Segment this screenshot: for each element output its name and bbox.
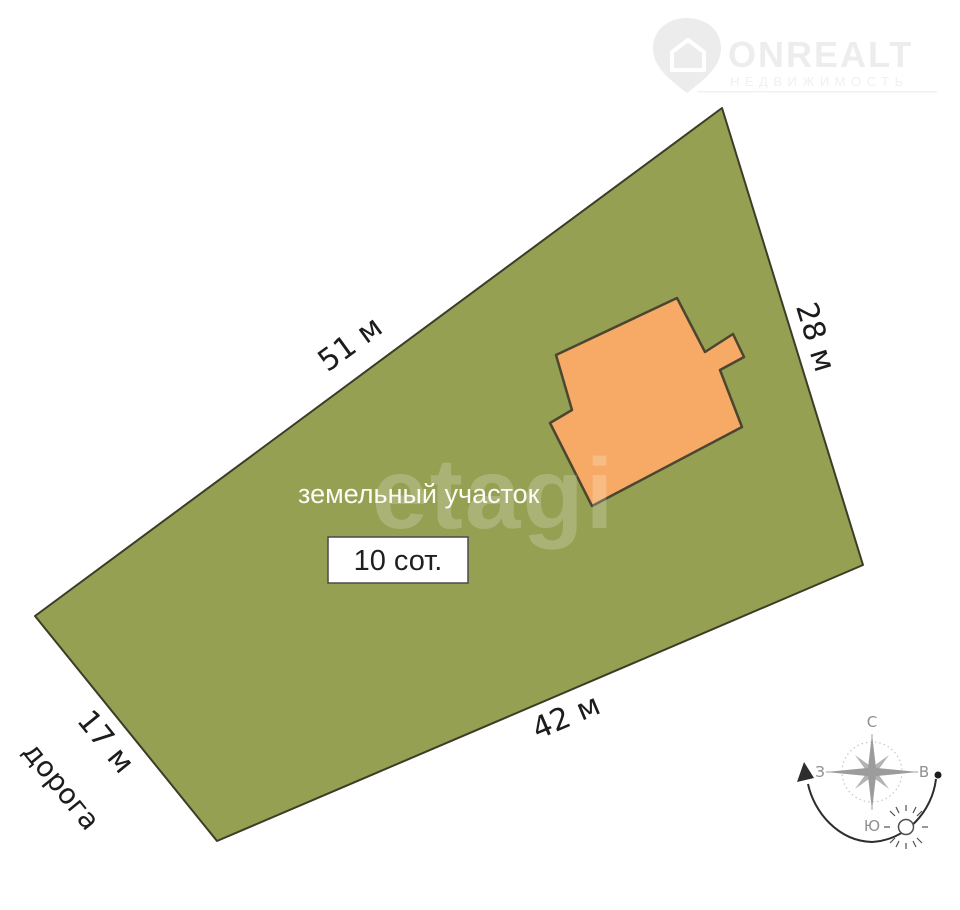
- logo-pin-icon: [653, 18, 721, 93]
- area-label: 10 сот.: [354, 545, 443, 577]
- compass-label-east: В: [919, 763, 929, 781]
- compass-rose: С Ю З В: [797, 713, 942, 849]
- logo-title: ONREALT: [728, 34, 913, 75]
- logo-underline: [697, 91, 937, 93]
- logo-subtitle: НЕДВИЖИМОСТЬ: [730, 74, 909, 89]
- land-plot-diagram: etagi земельный участок 10 сот. 51 м 28 …: [0, 0, 960, 910]
- compass-point-west: [826, 768, 872, 777]
- compass-arc-dot: [935, 772, 942, 779]
- onrealt-logo: ONREALT НЕДВИЖИМОСТЬ: [653, 18, 937, 93]
- compass-point-north: [868, 734, 877, 772]
- sun-icon: [884, 805, 928, 849]
- compass-label-west: З: [815, 763, 825, 781]
- compass-point-south: [868, 772, 877, 810]
- compass-point-east: [872, 768, 918, 777]
- diagram-svg: etagi земельный участок 10 сот. 51 м 28 …: [0, 0, 960, 910]
- compass-label-north: С: [867, 713, 877, 731]
- compass-label-south: Ю: [864, 817, 880, 835]
- compass-arc-arrowhead: [797, 762, 814, 782]
- plot-title: земельный участок: [298, 479, 540, 509]
